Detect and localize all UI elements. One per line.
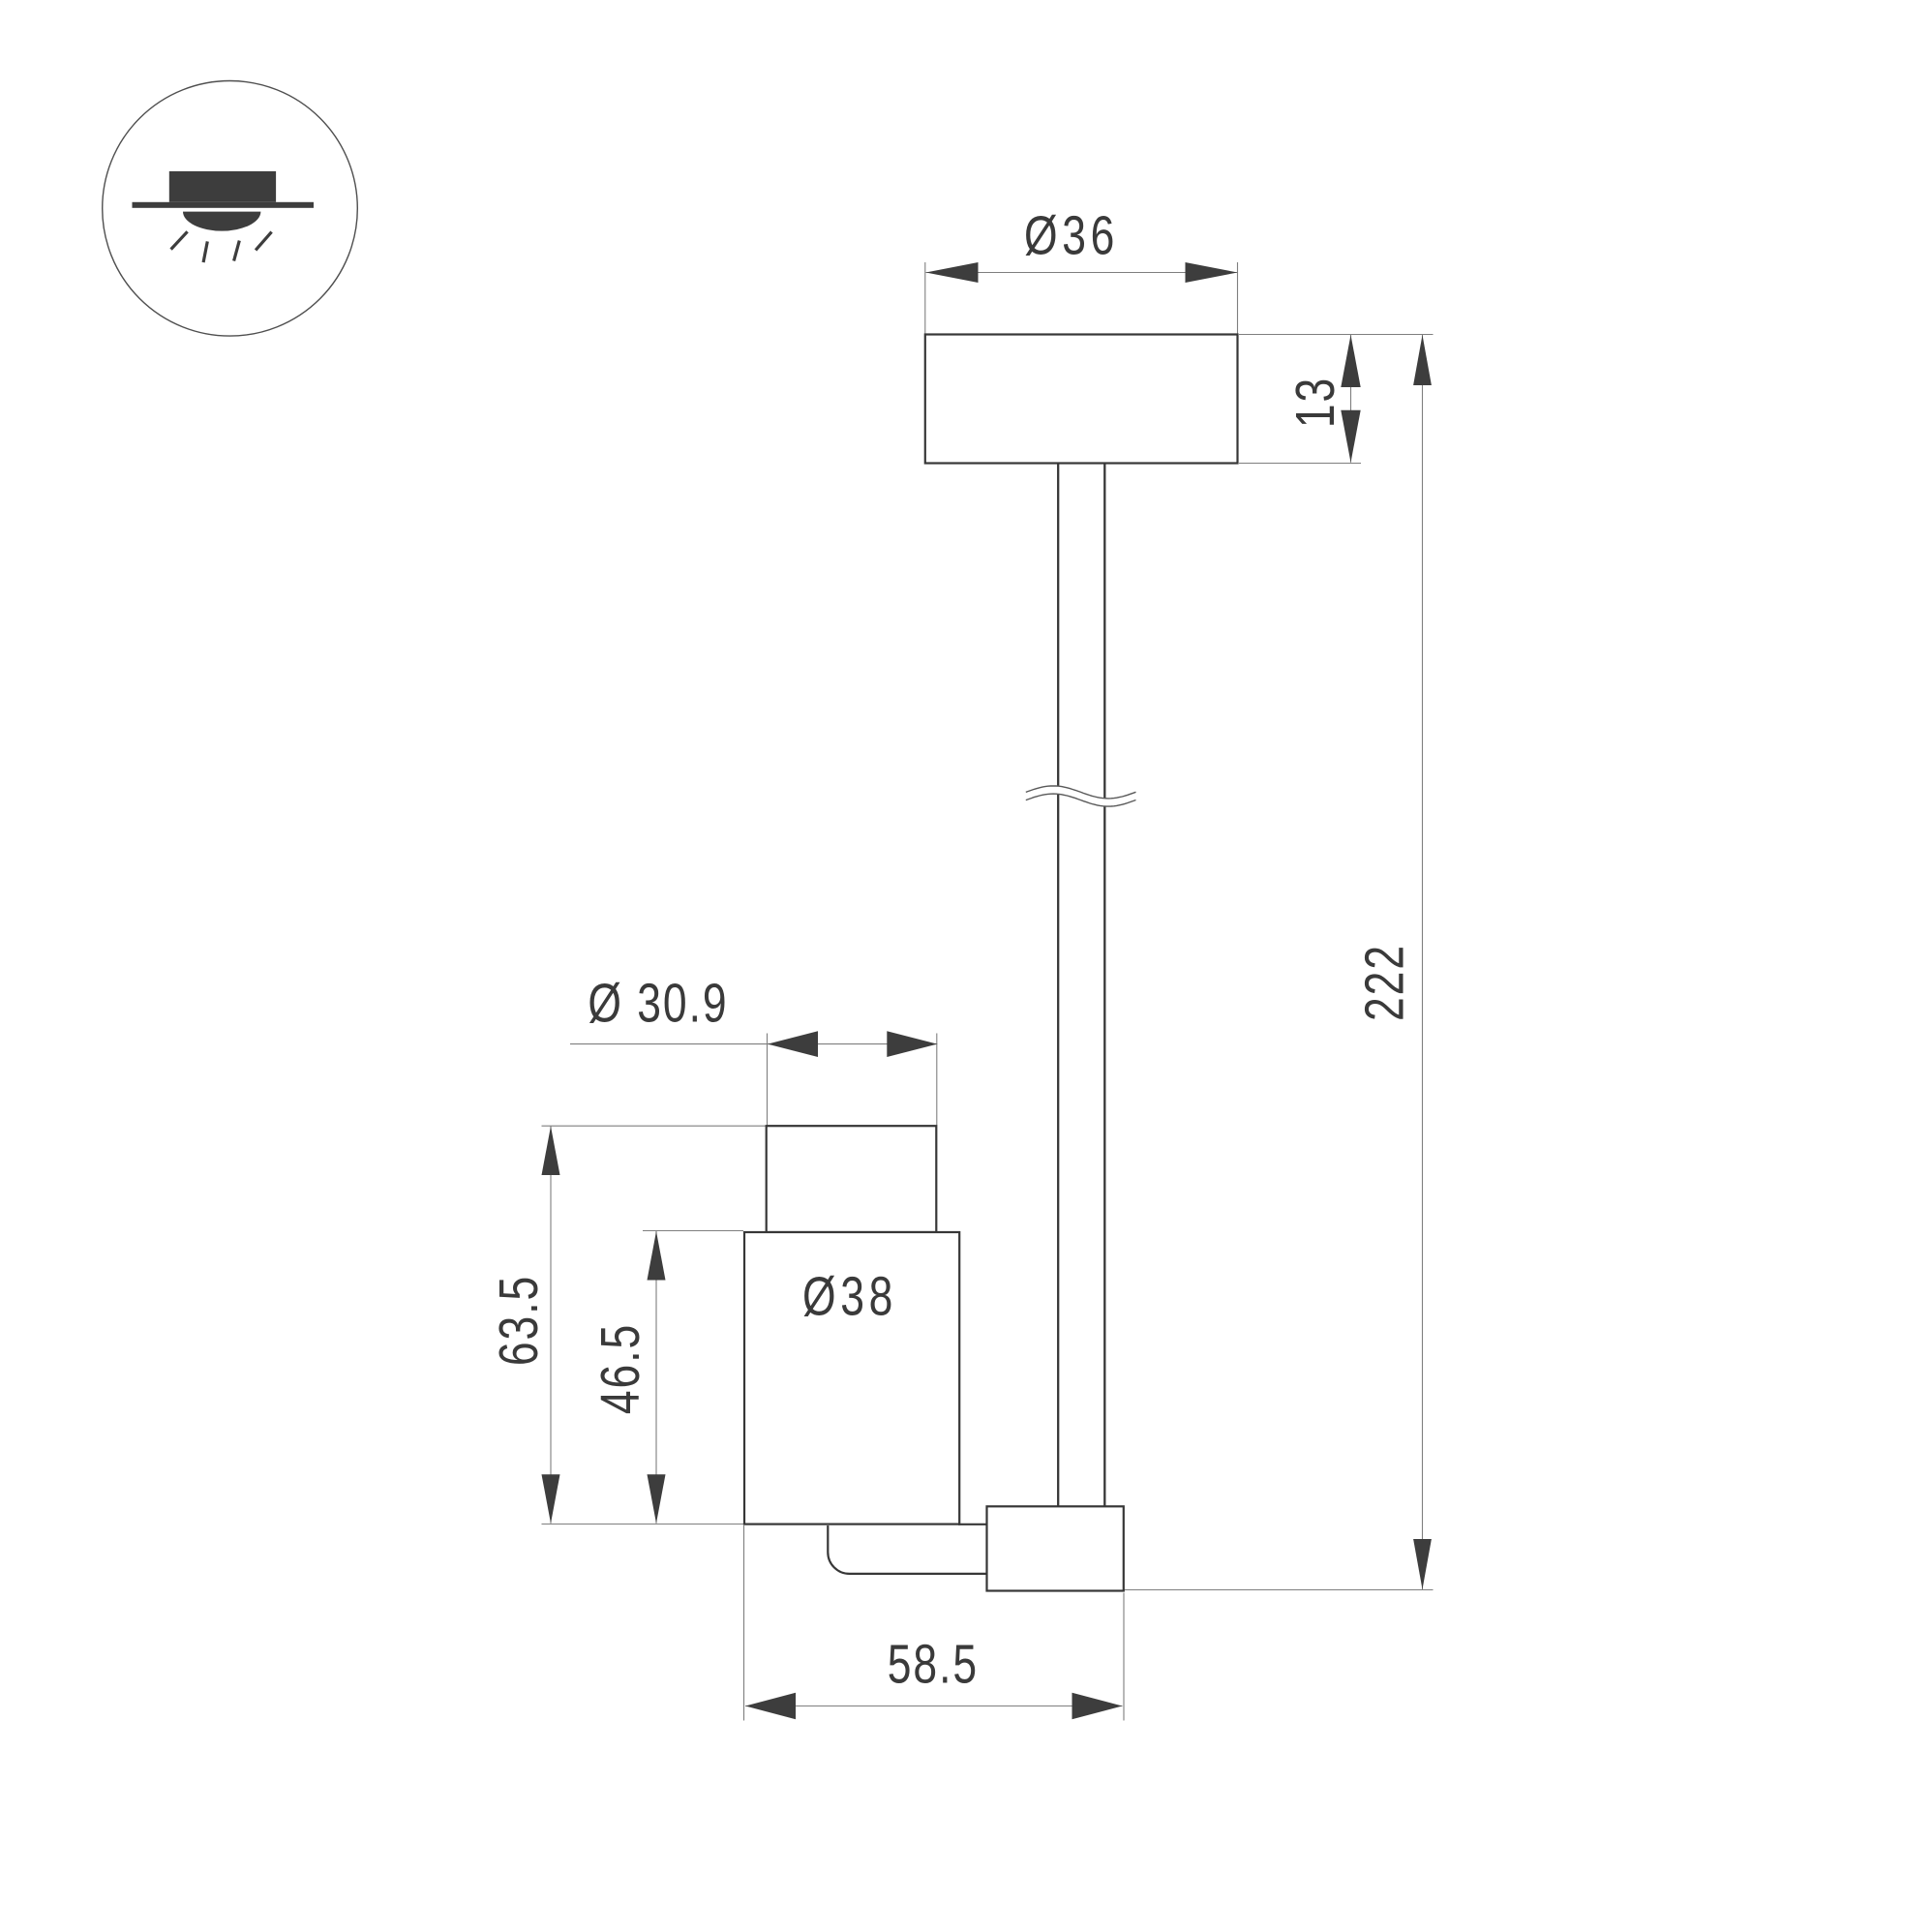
svg-text:Ø38: Ø38 — [802, 1265, 897, 1327]
svg-text:58.5: 58.5 — [888, 1633, 979, 1695]
svg-text:13: 13 — [1284, 377, 1346, 428]
svg-text:46.5: 46.5 — [589, 1323, 651, 1414]
svg-text:Ø 30.9: Ø 30.9 — [588, 972, 728, 1034]
svg-text:63.5: 63.5 — [488, 1275, 550, 1366]
svg-text:222: 222 — [1353, 944, 1415, 1021]
svg-text:Ø36: Ø36 — [1024, 204, 1119, 266]
